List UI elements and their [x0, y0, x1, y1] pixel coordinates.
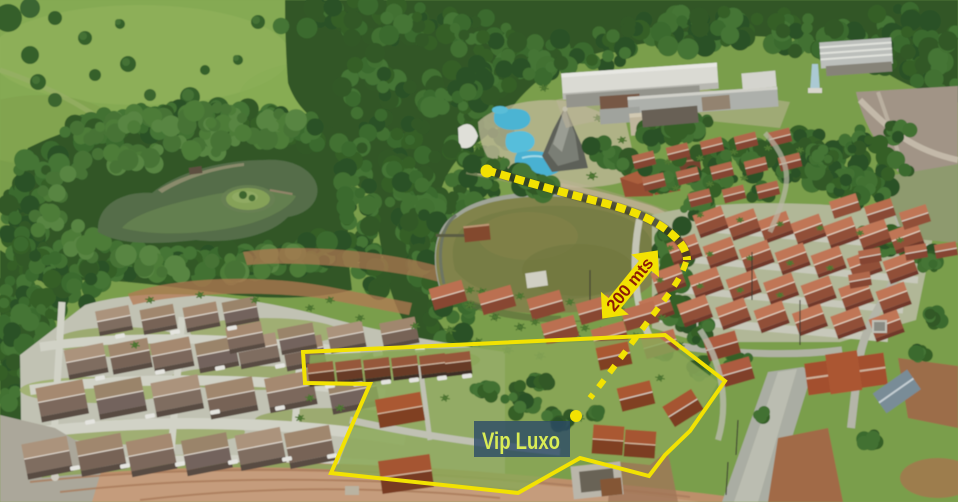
svg-text:Vip Luxo: Vip Luxo [482, 428, 560, 455]
